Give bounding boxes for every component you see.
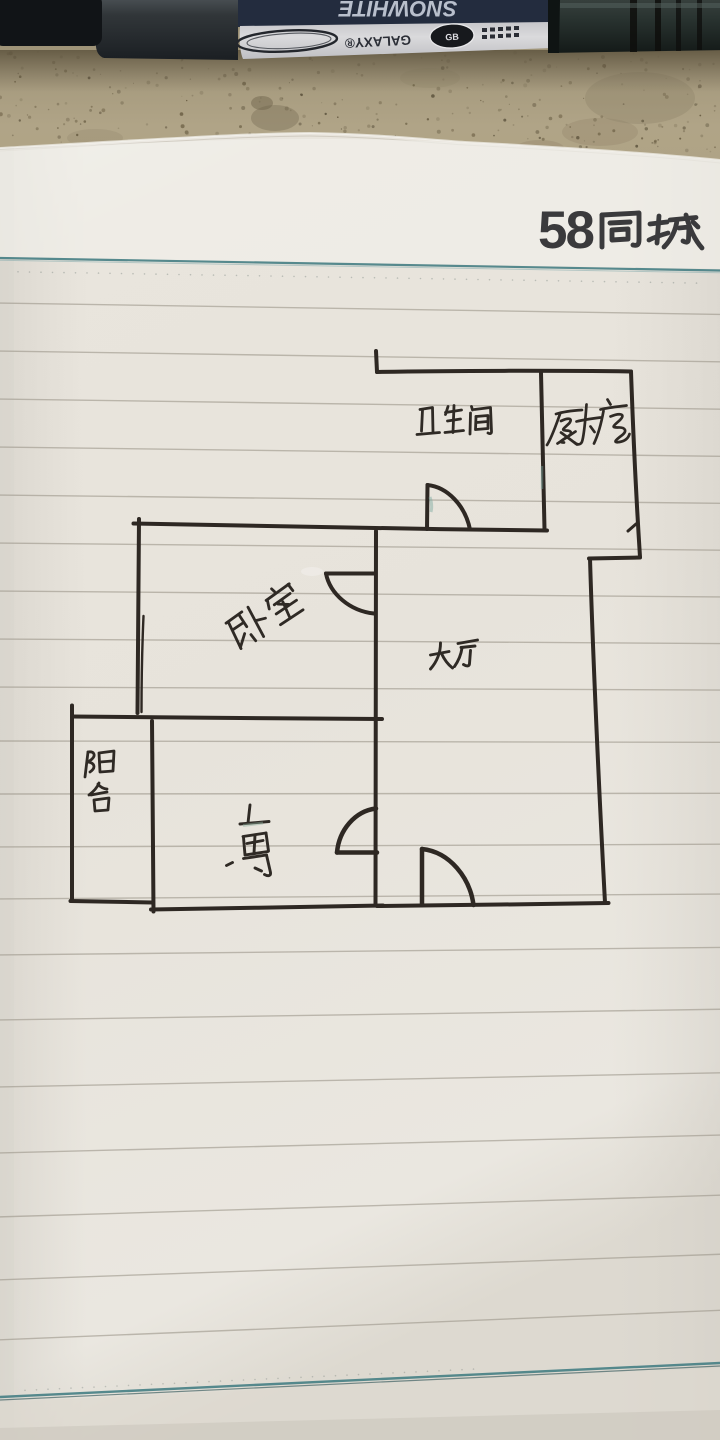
svg-text:GB: GB	[445, 32, 460, 43]
svg-text:SNOWHITE: SNOWHITE	[337, 0, 457, 21]
svg-text:58: 58	[538, 201, 593, 260]
